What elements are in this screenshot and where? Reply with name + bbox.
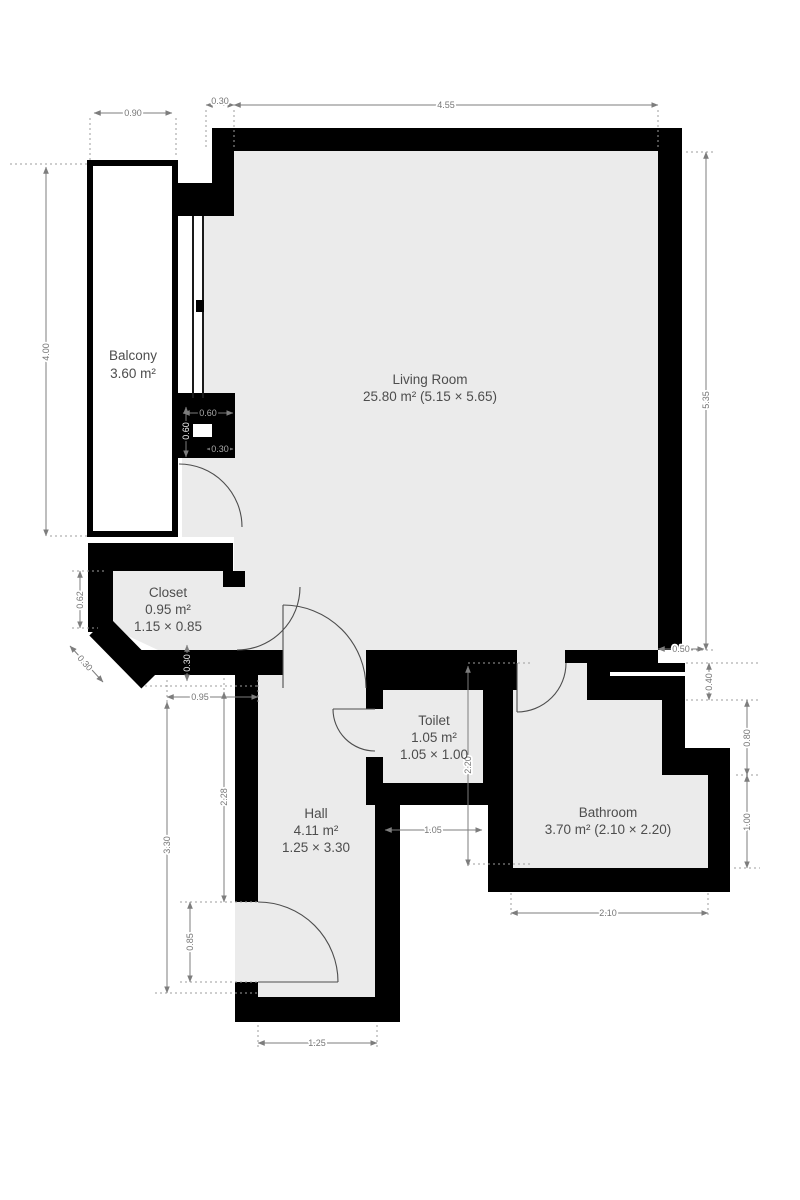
dim-hall-upper: 2.28 [219,788,229,806]
closet-label: Closet [149,585,188,600]
dim-living-top: 4.55 [437,100,455,110]
closet-size: 1.15 × 0.85 [134,619,202,634]
floor-plan-canvas: 0.90 0.30 4.55 4.00 5.35 0.62 0.30 0.30 … [0,0,800,1200]
wall-segment [235,675,258,902]
wall-segment [488,868,730,892]
closet-door-patch [223,587,245,650]
dim-bath-right-lower: 1.00 [742,813,752,831]
wall-segment [178,183,212,216]
wall-segment [140,650,283,675]
dim-balcony-door-depth: 0.60 [181,422,191,440]
dim-entry-door: 0.85 [185,933,195,951]
hall-top-door-patch [283,650,366,675]
closet-area: 0.95 m² [145,602,191,617]
dim-bath-width: 2.10 [599,908,617,918]
window-mullion [196,300,204,312]
entry-door-patch [235,902,258,982]
wall-segment [565,650,658,663]
wall-segment [223,571,245,587]
wall-segment [212,128,682,151]
balcony-area: 3.60 m² [110,366,156,381]
dim-balcony-height: 4.00 [41,343,51,361]
dim-living-right: 5.35 [701,391,711,409]
hall-area: 4.11 m² [294,823,339,838]
dim-balcony-width: 0.90 [124,108,142,118]
wall-niche [193,424,212,437]
dim-top-wall-offset: 0.30 [211,96,229,106]
dim-hall-width: 1.25 [308,1038,326,1048]
balcony-label: Balcony [109,348,157,363]
dim-bath-step: 0.40 [704,673,714,691]
hall-size: 1.25 × 3.30 [282,840,350,855]
bathroom-label: Bathroom [579,805,638,820]
toilet-door-patch [366,709,383,757]
bathroom-area: 3.70 m² (2.10 × 2.20) [545,822,671,837]
dim-hall-top-width: 0.95 [191,692,209,702]
wall-segment [366,757,383,783]
toilet-area: 1.05 m² [411,730,457,745]
living-room-area: 25.80 m² (5.15 × 5.65) [363,389,497,404]
dim-bath-right-upper: 0.80 [742,729,752,747]
dim-closet-left: 0.62 [75,591,85,609]
wall-segment [662,748,730,775]
wall-segment [366,690,383,709]
wall-segment [375,783,400,1022]
living-room-label: Living Room [392,372,467,387]
dim-balcony-door-width: 0.60 [199,408,217,418]
wall-segment [658,151,682,650]
dim-toilet-width: 1.05 [424,825,442,835]
dim-bath-top-offset: 0.50 [672,644,690,654]
dim-closet-wall: 0.30 [182,654,192,672]
wall-segment [587,663,685,700]
wall-segment [212,151,234,216]
wall-segment [662,700,685,748]
hall-label: Hall [304,806,327,821]
toilet-size: 1.05 × 1.00 [400,747,468,762]
floor-plan-page: 0.90 0.30 4.55 4.00 5.35 0.62 0.30 0.30 … [0,0,800,1200]
toilet-label: Toilet [418,713,450,728]
dim-hall-full: 3.30 [162,836,172,854]
wall-segment [488,663,513,892]
wall-vent [610,672,685,676]
living-room-window-strip [204,216,234,398]
wall-segment [235,997,398,1022]
dim-balcony-door-offset: 0.30 [211,444,229,454]
living-room-door-strip [182,455,234,537]
